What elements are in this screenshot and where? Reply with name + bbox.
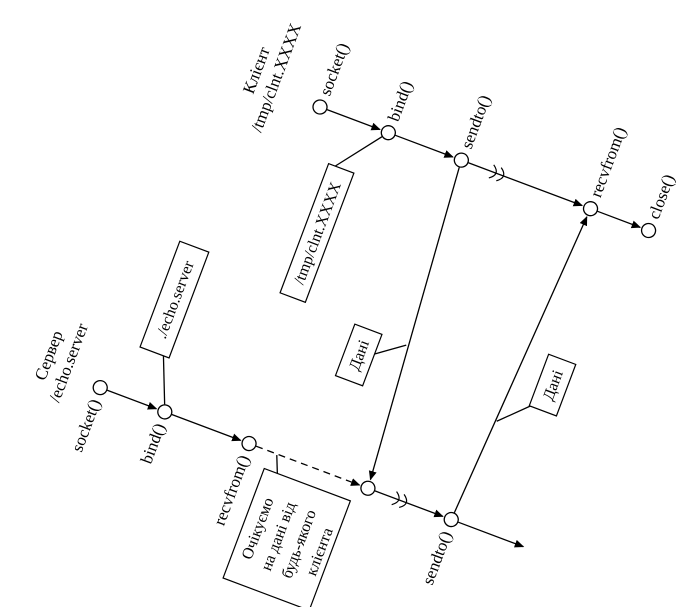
diagram-canvas: /tmp/clnt.XXXX ./echo.server Очікуємо на… [0, 0, 693, 607]
udp-socket-diagram: /tmp/clnt.XXXX ./echo.server Очікуємо на… [0, 0, 693, 607]
background [0, 0, 693, 607]
